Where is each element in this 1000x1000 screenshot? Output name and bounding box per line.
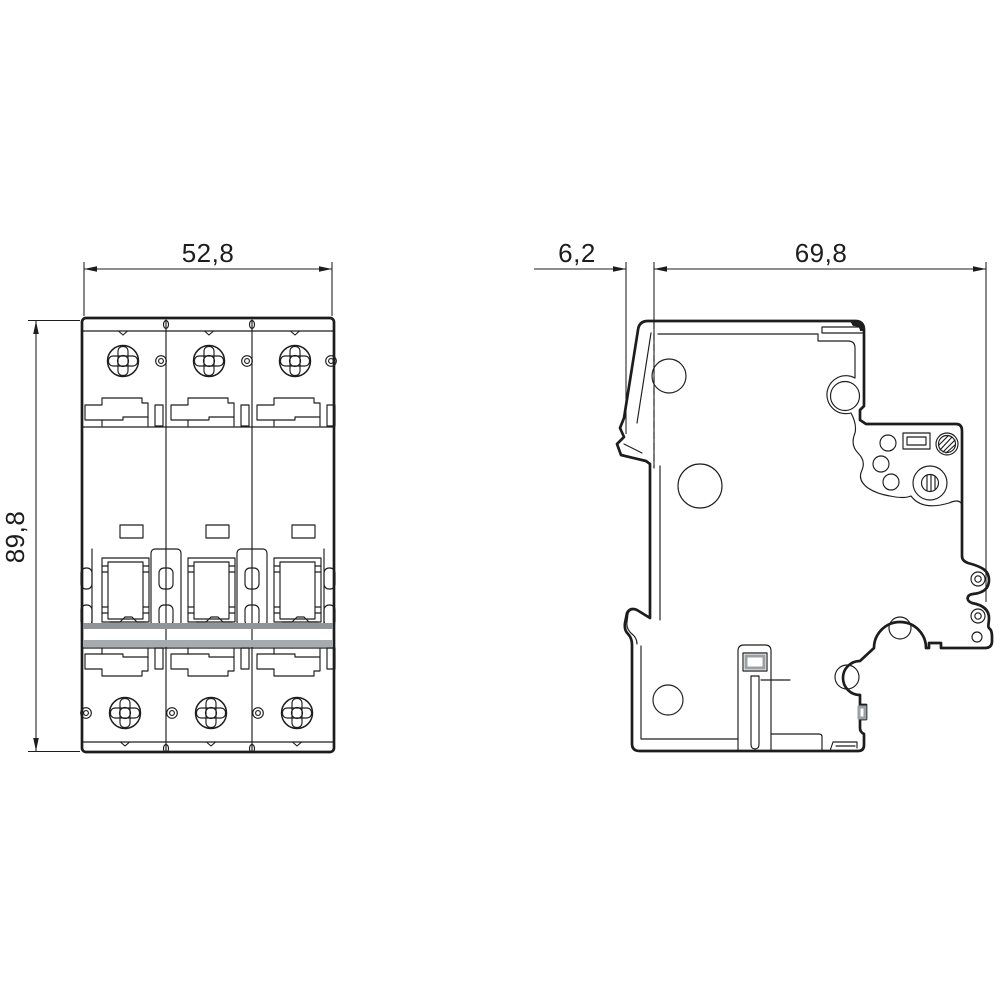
terminal-screws-top bbox=[108, 346, 337, 377]
hole-bottom-right bbox=[889, 617, 911, 639]
small-hole-2 bbox=[873, 456, 889, 472]
side-detail-rect bbox=[903, 433, 930, 449]
side-view bbox=[617, 321, 992, 751]
pole-divider-lines bbox=[166, 320, 252, 751]
front-view bbox=[81, 318, 337, 753]
bottom-step bbox=[771, 734, 822, 750]
dimension-front-height: 89,8 bbox=[0, 321, 80, 752]
top-inner-seam bbox=[658, 334, 855, 378]
internal-seam bbox=[827, 376, 961, 506]
busbar-terminals-top bbox=[82, 398, 335, 427]
busbar-terminals-bottom bbox=[82, 648, 335, 676]
slotted-screw bbox=[913, 466, 947, 500]
din-rail-band-lower bbox=[83, 640, 333, 647]
dimension-label-side-depth: 69,8 bbox=[795, 238, 848, 268]
terminal-screws-bottom bbox=[81, 698, 313, 729]
dimension-front-width: 52,8 bbox=[84, 238, 332, 316]
rivet-top-right bbox=[831, 382, 860, 411]
housing-hole-top bbox=[652, 359, 686, 393]
mounting-slot bbox=[738, 645, 790, 751]
dimension-label-front-height: 89,8 bbox=[0, 511, 30, 564]
dimension-label-front-width: 52,8 bbox=[182, 238, 235, 268]
hatched-screw bbox=[936, 433, 958, 455]
latch-detail bbox=[859, 707, 865, 718]
small-hole-3 bbox=[883, 474, 899, 490]
dimension-label-side-offset: 6,2 bbox=[558, 238, 596, 268]
housing-hole-middle bbox=[678, 464, 722, 508]
dimension-side-depth: 69,8 bbox=[654, 238, 986, 602]
din-rail-band-upper bbox=[83, 623, 333, 629]
small-hole-1 bbox=[880, 435, 896, 451]
toggle-area bbox=[81, 549, 335, 626]
top-right-notch bbox=[822, 327, 863, 333]
technical-drawing-page: 52,8 89,8 6,2 69,8 bbox=[0, 0, 1000, 1000]
drawing-canvas: 52,8 89,8 6,2 69,8 bbox=[0, 0, 1000, 1000]
label-windows bbox=[120, 525, 315, 538]
housing-hole-bottom bbox=[653, 685, 683, 715]
dimension-side-offset: 6,2 bbox=[534, 238, 654, 468]
